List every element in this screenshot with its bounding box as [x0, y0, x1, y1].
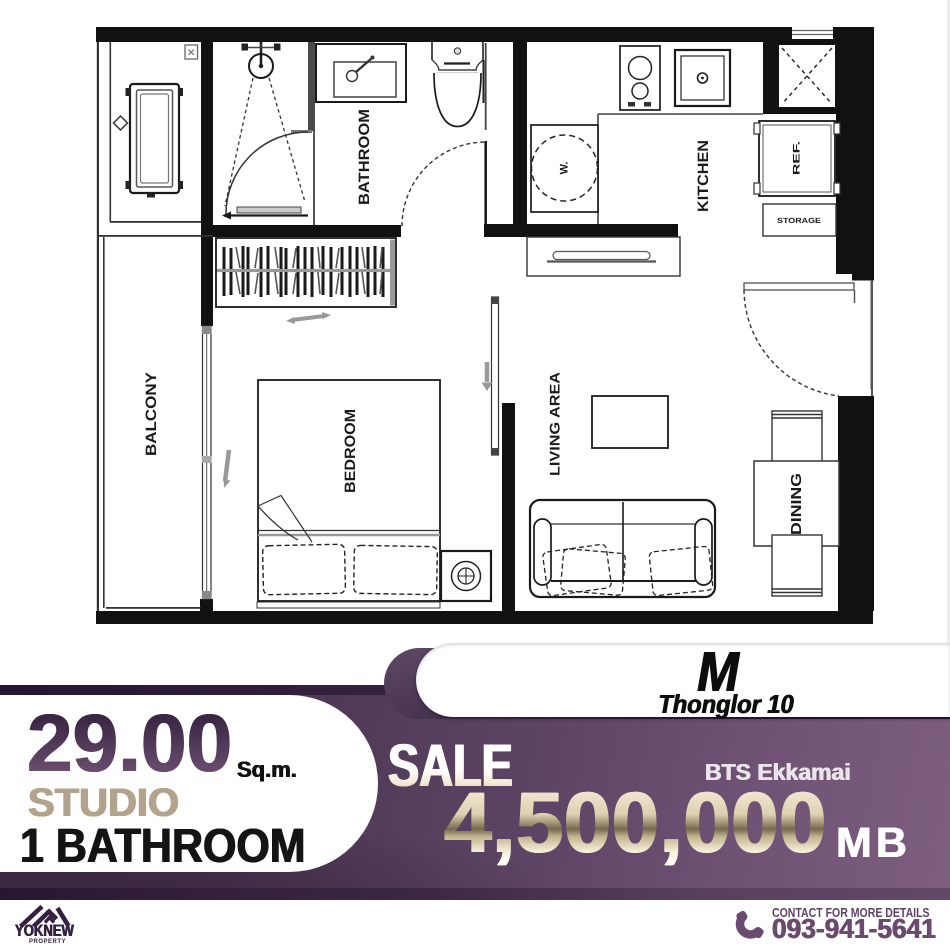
svg-text:BATHROOM: BATHROOM	[356, 109, 373, 205]
svg-text:W.: W.	[558, 162, 570, 175]
svg-text:KITCHEN: KITCHEN	[695, 140, 712, 212]
svg-text:STORAGE: STORAGE	[777, 216, 821, 225]
svg-text:LIVING AREA: LIVING AREA	[547, 372, 563, 476]
svg-text:DINING: DINING	[789, 473, 805, 535]
svg-text:REF.: REF.	[792, 141, 803, 175]
svg-text:BALCONY: BALCONY	[143, 372, 160, 456]
svg-text:BEDROOM: BEDROOM	[342, 409, 359, 493]
